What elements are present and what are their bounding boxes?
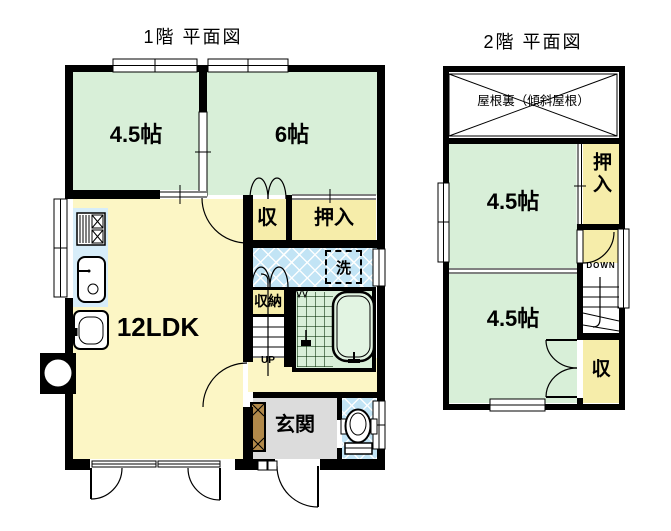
wall xyxy=(320,459,385,470)
oshiire-label: 押入 xyxy=(292,208,376,229)
room-4-5-lower-label: 4.5帖 xyxy=(449,307,577,330)
toilet-room xyxy=(342,397,377,459)
wall xyxy=(577,398,583,404)
wall xyxy=(65,65,73,198)
bath-tile-area xyxy=(297,292,333,367)
laundry-label: 洗 xyxy=(336,257,351,278)
wall xyxy=(443,138,625,144)
down-label: DOWN xyxy=(583,262,619,270)
ldk-label: 12LDK xyxy=(73,314,243,341)
floor1-title: 1階 平面図 xyxy=(93,28,293,47)
wall xyxy=(619,66,625,410)
room-4-5-upper-label: 4.5帖 xyxy=(449,190,577,213)
wall xyxy=(443,404,625,410)
room-6-label: 6帖 xyxy=(207,123,377,146)
stairs-2f-area xyxy=(583,263,619,333)
wall xyxy=(243,240,385,248)
wall xyxy=(65,459,90,470)
wall xyxy=(235,459,275,470)
room-4-5-label: 4.5帖 xyxy=(73,123,199,146)
genkan-label: 玄関 xyxy=(253,415,337,436)
closet-shu-label: 収 xyxy=(246,208,288,229)
wall xyxy=(253,392,385,398)
stair-landing-2f xyxy=(583,230,619,263)
floor-plan-canvas: 1階 平面図 4.5帖 6帖 12LDK 収 押入 収納 UP 玄関 洗 2階 … xyxy=(0,0,671,531)
wall xyxy=(577,224,625,230)
wall xyxy=(243,407,253,459)
wall xyxy=(377,65,385,470)
wall xyxy=(65,65,385,72)
wall xyxy=(577,333,625,340)
attic-label: 屋根裏（傾斜屋根） xyxy=(449,95,618,108)
up-label: UP xyxy=(250,356,286,367)
kitchen-counter xyxy=(73,208,108,307)
wall xyxy=(337,448,342,459)
oshiire-2f-label: 押入 xyxy=(590,152,610,196)
storage-label: 収納 xyxy=(248,294,288,309)
wall xyxy=(577,263,583,337)
wall xyxy=(337,397,342,420)
closet-shu-2f-label: 収 xyxy=(583,360,619,380)
wall xyxy=(443,66,449,410)
floor2-title: 2階 平面図 xyxy=(433,33,633,52)
wall xyxy=(65,298,73,459)
washing-machine-box: 洗 xyxy=(325,250,362,284)
wall xyxy=(65,190,160,199)
wall xyxy=(199,65,207,112)
stairs-1f-area xyxy=(250,317,284,358)
wall xyxy=(443,66,625,72)
room-4-5-lower-2f xyxy=(449,274,577,403)
